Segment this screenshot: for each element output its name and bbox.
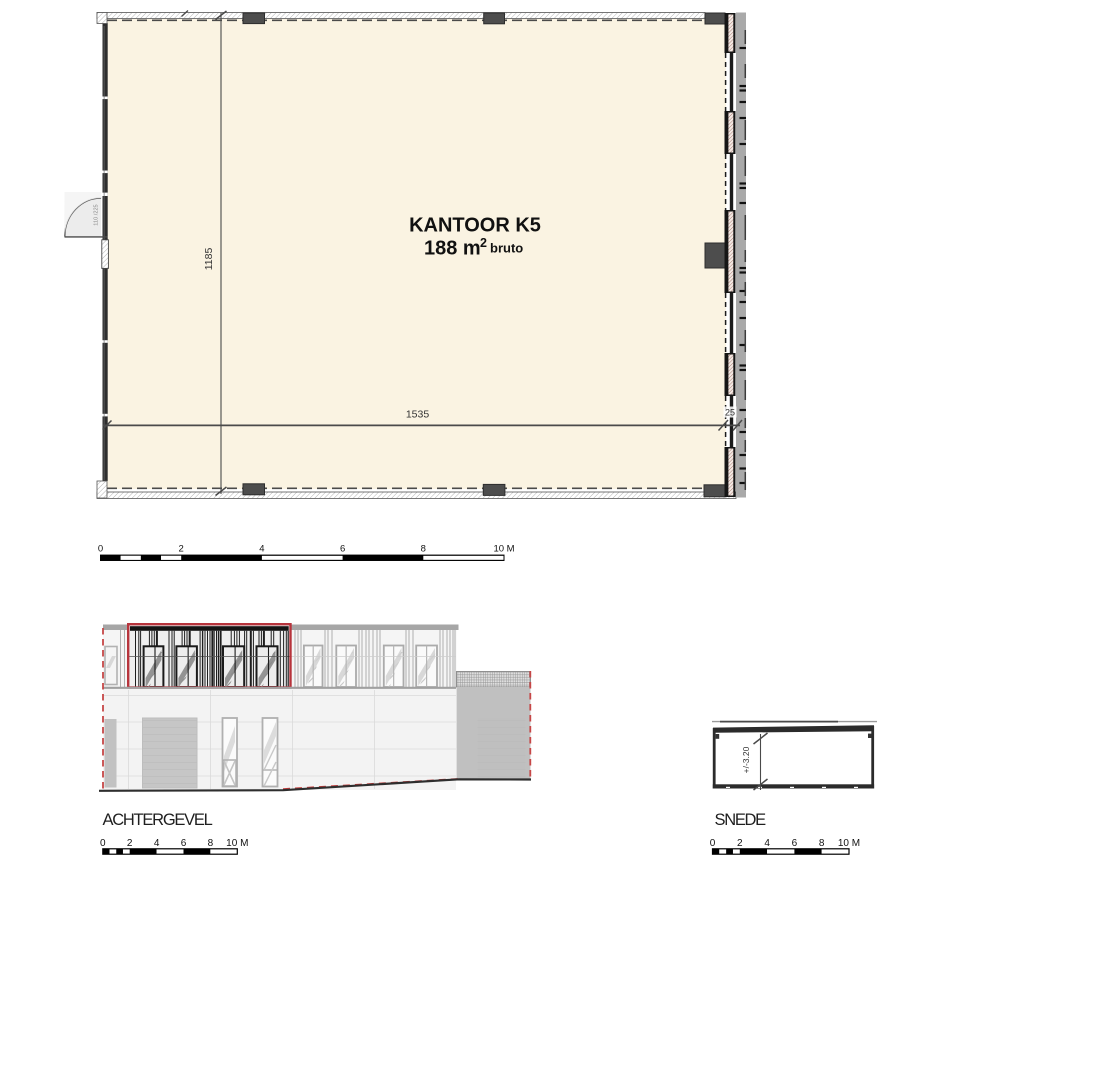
svg-text:bruto: bruto [490,241,523,256]
svg-text:6: 6 [181,838,187,849]
svg-text:0: 0 [100,838,106,849]
svg-text:KANTOOR K5: KANTOOR K5 [409,215,541,237]
svg-text:1535: 1535 [406,409,430,421]
svg-text:8: 8 [819,838,825,849]
svg-text:2: 2 [737,838,743,849]
svg-text:10 M: 10 M [226,838,248,849]
svg-text:SNEDE: SNEDE [715,811,767,829]
svg-text:4: 4 [259,544,264,555]
svg-text:4: 4 [764,838,770,849]
svg-text:6: 6 [340,544,345,555]
svg-text:10 M: 10 M [493,544,514,555]
svg-text:ACHTERGEVEL: ACHTERGEVEL [103,811,213,829]
svg-text:0: 0 [710,838,716,849]
svg-text:25: 25 [725,408,735,418]
svg-text:0: 0 [98,544,103,555]
svg-text:188 m: 188 m [424,238,481,260]
svg-text:2: 2 [127,838,133,849]
svg-text:8: 8 [208,838,214,849]
svg-text:110 /225: 110 /225 [94,204,100,225]
svg-text:10 M: 10 M [838,838,860,849]
svg-text:2: 2 [179,544,184,555]
svg-text:4: 4 [154,838,160,849]
svg-text:8: 8 [421,544,426,555]
svg-text:6: 6 [792,838,798,849]
svg-text:2: 2 [480,236,487,250]
svg-text:+/-3.20: +/-3.20 [741,746,751,773]
svg-text:1185: 1185 [203,248,215,271]
